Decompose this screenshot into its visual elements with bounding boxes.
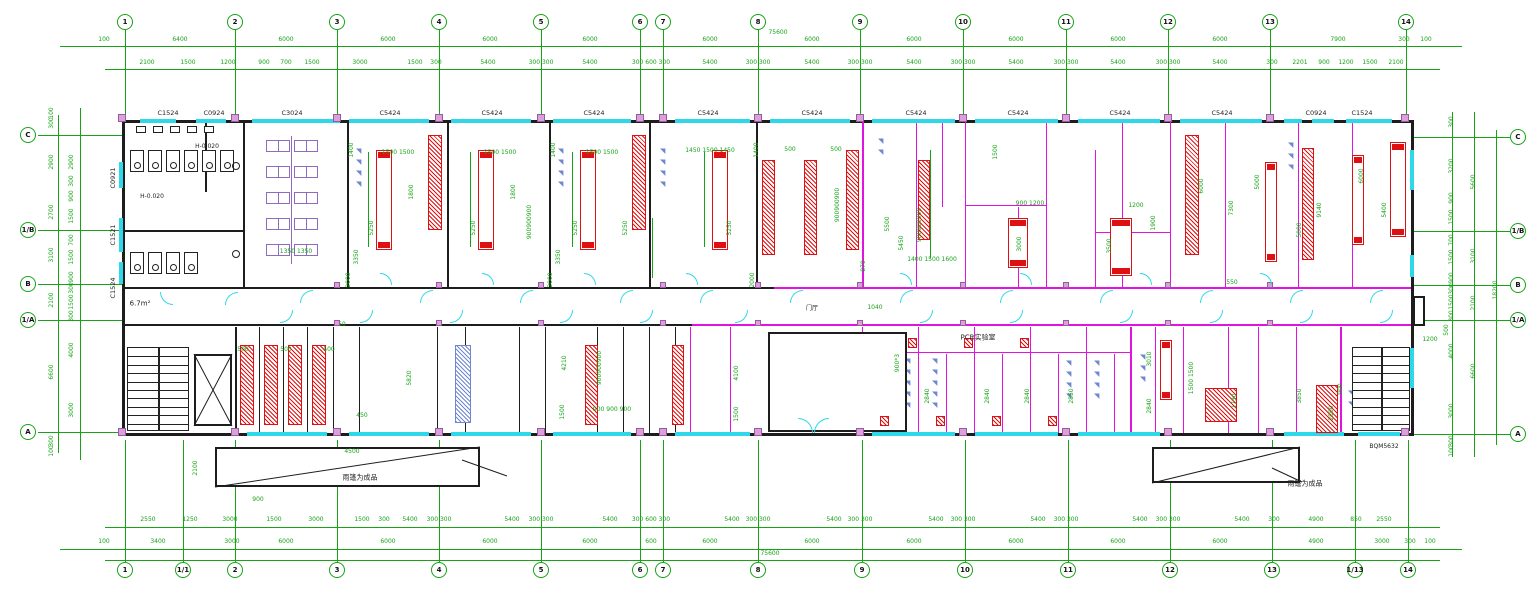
column bbox=[659, 114, 667, 122]
dim-label: 1500 bbox=[1449, 209, 1455, 224]
window bbox=[119, 262, 123, 284]
window bbox=[553, 119, 631, 123]
door-arc bbox=[1260, 273, 1272, 285]
grid-bubble: 9 bbox=[854, 562, 870, 578]
toilet-stall bbox=[130, 252, 144, 274]
chevron-icon: ◥ bbox=[1094, 358, 1104, 369]
dim-label: 2700 bbox=[49, 204, 55, 219]
grid-bubble: 2 bbox=[227, 562, 243, 578]
door-arc bbox=[1200, 290, 1213, 303]
dim-label: 900*3 bbox=[895, 354, 901, 372]
grid-axis-line bbox=[541, 440, 542, 562]
stair-rail bbox=[1381, 348, 1383, 430]
dim-label: 3010 bbox=[1147, 351, 1153, 366]
dim-label: 1250 bbox=[182, 517, 197, 523]
door-arc bbox=[300, 290, 313, 303]
wall bbox=[1095, 232, 1171, 233]
grid-axis-line bbox=[1355, 440, 1356, 562]
grid-axis-line bbox=[663, 440, 664, 562]
dim-label: 1500 bbox=[266, 517, 281, 523]
wall bbox=[307, 327, 308, 433]
bench-cap bbox=[582, 242, 594, 248]
equipment-red bbox=[992, 416, 1001, 426]
dim-label: 2100 bbox=[1388, 60, 1403, 66]
grid-bubble: 1/A bbox=[20, 312, 36, 328]
grid-bubble: 8 bbox=[750, 14, 766, 30]
chevron-symbols: ◥◥◥◥◥ bbox=[932, 356, 942, 411]
dim-label: 5400 bbox=[402, 517, 417, 523]
dim-label: 850 bbox=[1350, 517, 1361, 523]
dim-label: 300 300 bbox=[746, 60, 771, 66]
dim-line bbox=[105, 560, 1440, 561]
dim-label: 6000 bbox=[482, 539, 497, 545]
window bbox=[1410, 150, 1414, 190]
dim-label: 2900 bbox=[69, 154, 75, 169]
chevron-icon: ◥ bbox=[356, 146, 366, 157]
equipment-red bbox=[846, 150, 859, 250]
grid-axis-line bbox=[1068, 440, 1069, 562]
grid-axis-line bbox=[1270, 30, 1271, 120]
grid-bubble: 4 bbox=[431, 14, 447, 30]
bench-cap bbox=[714, 242, 726, 248]
grid-axis-line bbox=[965, 440, 966, 562]
door-arc bbox=[1010, 310, 1023, 323]
grid-bubble: 3 bbox=[329, 14, 345, 30]
stair-rail bbox=[158, 348, 160, 430]
dim-label: 300 300 bbox=[848, 60, 873, 66]
equipment-red bbox=[632, 135, 646, 230]
window bbox=[196, 119, 226, 123]
wall bbox=[243, 122, 245, 287]
dim-label: 6000 bbox=[702, 539, 717, 545]
chevron-icon: ◥ bbox=[558, 179, 568, 190]
wall bbox=[918, 327, 919, 433]
column bbox=[660, 282, 666, 288]
diagonal-line bbox=[462, 458, 507, 478]
grid-axis-line bbox=[862, 440, 863, 562]
dim-label: 100 bbox=[49, 445, 55, 456]
equipment-red bbox=[908, 338, 917, 348]
dim-label: 300 300 bbox=[427, 517, 452, 523]
dim-label: 2840 bbox=[985, 388, 991, 403]
bench-cap bbox=[1162, 392, 1170, 398]
dim-label: 3100 bbox=[1471, 248, 1477, 263]
dim-label: 2100 bbox=[49, 292, 55, 307]
dim-label: 2840 bbox=[1025, 388, 1031, 403]
dim-label: 6000 bbox=[1199, 178, 1205, 193]
dim-label: 300 300 bbox=[529, 517, 554, 523]
dim-label: 300 bbox=[1449, 310, 1455, 321]
dim-label: 6000 bbox=[380, 539, 395, 545]
window bbox=[1312, 119, 1334, 123]
chevron-icon: ◥ bbox=[1094, 380, 1104, 391]
dim-label: 2850 bbox=[1069, 388, 1075, 403]
dim-line bbox=[704, 152, 705, 247]
door-arc bbox=[735, 310, 748, 323]
door-arc bbox=[1210, 310, 1223, 323]
wall bbox=[283, 327, 284, 433]
toilet-fixture bbox=[153, 126, 163, 133]
dim-label: 900 bbox=[258, 60, 269, 66]
bench-cap bbox=[1162, 342, 1170, 348]
wall bbox=[235, 327, 237, 433]
dim-label: 1500 bbox=[1362, 60, 1377, 66]
wall bbox=[545, 327, 546, 433]
door-arc bbox=[1120, 310, 1133, 323]
chevron-icon: ◥ bbox=[558, 157, 568, 168]
dim-label: 900 bbox=[1318, 60, 1329, 66]
dim-label: 900 bbox=[1449, 192, 1455, 203]
dim-label: 4210 bbox=[562, 355, 568, 370]
column bbox=[435, 428, 443, 436]
dim-label: 5400 bbox=[1008, 60, 1023, 66]
dim-label: 5400 bbox=[804, 60, 819, 66]
column bbox=[959, 428, 967, 436]
dim-label: 500 bbox=[280, 347, 291, 353]
wall bbox=[649, 327, 650, 433]
dim-label: 3000 bbox=[69, 402, 75, 417]
dim-line bbox=[60, 46, 1462, 47]
toilet-stall bbox=[202, 150, 216, 172]
dim-label: 300 bbox=[1266, 60, 1277, 66]
dim-label: 6000 bbox=[804, 37, 819, 43]
bench-cap bbox=[1354, 237, 1362, 243]
dim-label: 5400 bbox=[724, 517, 739, 523]
door-arc bbox=[900, 273, 912, 285]
annotation-label: 6.7m² bbox=[130, 301, 151, 308]
dim-label: 300 bbox=[69, 282, 75, 293]
dim-label: 300 300 bbox=[848, 517, 873, 523]
grid-bubble: C bbox=[1510, 129, 1526, 145]
grid-axis-line bbox=[640, 440, 641, 562]
dim-label: 100 bbox=[98, 539, 109, 545]
dim-label: 5000 bbox=[1297, 222, 1303, 237]
dim-label: 900 900 900 bbox=[593, 407, 631, 413]
office-desk bbox=[266, 192, 290, 204]
toilet-fixture bbox=[136, 126, 146, 133]
equipment-red bbox=[672, 345, 684, 425]
wall bbox=[1296, 327, 1297, 433]
dim-label: 100 bbox=[1424, 539, 1435, 545]
grid-bubble: 6 bbox=[632, 14, 648, 30]
column bbox=[537, 114, 545, 122]
toilet-fixture bbox=[187, 126, 197, 133]
annotation-label: BQM5632 bbox=[1369, 444, 1398, 450]
window bbox=[1180, 119, 1262, 123]
grid-bubble: 9 bbox=[852, 14, 868, 30]
equipment-rack bbox=[455, 345, 471, 423]
lab-bench bbox=[478, 150, 494, 250]
door-arc bbox=[900, 290, 913, 303]
grid-bubble: 5 bbox=[533, 562, 549, 578]
dim-label: 1500 bbox=[734, 406, 740, 421]
column bbox=[231, 114, 239, 122]
column bbox=[754, 114, 762, 122]
window bbox=[140, 119, 176, 123]
window-tag: C5424 bbox=[481, 110, 502, 117]
dim-label: 75600 bbox=[768, 30, 787, 36]
grid-axis-line bbox=[758, 30, 759, 120]
window-tag: C3024 bbox=[281, 110, 302, 117]
staircase bbox=[127, 347, 189, 431]
grid-axis-line bbox=[541, 30, 542, 120]
dim-label: 3000 bbox=[1374, 539, 1389, 545]
dim-label: 5400 bbox=[826, 517, 841, 523]
door-arc bbox=[280, 310, 293, 323]
grid-axis-line bbox=[125, 440, 126, 562]
column bbox=[857, 320, 863, 326]
dim-label: 5400 bbox=[1132, 517, 1147, 523]
dim-label: 300 bbox=[69, 175, 75, 186]
annotation-label: H-0.020 bbox=[195, 144, 219, 150]
column bbox=[856, 114, 864, 122]
dim-label: 870 bbox=[861, 260, 867, 271]
wall bbox=[124, 230, 244, 232]
grid-bubble: 1/B bbox=[20, 222, 36, 238]
window-tag: C1524 bbox=[1351, 110, 1372, 117]
grid-axis-line bbox=[1066, 30, 1067, 120]
chevron-symbols: ◥◥◥◥ bbox=[1094, 358, 1104, 402]
lab-bench bbox=[1265, 162, 1277, 262]
window bbox=[1078, 119, 1160, 123]
chevron-icon: ◥ bbox=[660, 157, 670, 168]
equipment-red bbox=[880, 416, 889, 426]
wall bbox=[692, 324, 1411, 326]
grid-bubble: A bbox=[1510, 426, 1526, 442]
dim-label: 500 bbox=[830, 147, 841, 153]
toilet-stall bbox=[166, 150, 180, 172]
dim-label: 5400 bbox=[1382, 202, 1388, 217]
dim-label: 3000 bbox=[352, 60, 367, 66]
grid-axis-line bbox=[963, 30, 964, 120]
grid-axis-line bbox=[758, 440, 759, 562]
dim-label: 2100 bbox=[193, 460, 199, 475]
dim-label: 1200 bbox=[220, 60, 235, 66]
bench-cap bbox=[378, 242, 390, 248]
dim-label: 550 bbox=[1226, 280, 1237, 286]
grid-bubble: 2 bbox=[227, 14, 243, 30]
dim-label: 2000 bbox=[548, 272, 554, 287]
column bbox=[755, 282, 761, 288]
grid-axis-line bbox=[439, 30, 440, 120]
door-arc bbox=[420, 290, 433, 303]
wall bbox=[519, 327, 520, 433]
door-arc bbox=[1290, 290, 1303, 303]
floor-plan-canvas: 123456789101112131411/123456789101112131… bbox=[0, 0, 1540, 590]
wall bbox=[259, 327, 260, 433]
column bbox=[1063, 320, 1069, 326]
office-desk bbox=[266, 218, 290, 230]
dim-label: 2550 bbox=[1376, 517, 1391, 523]
wall bbox=[1114, 354, 1115, 433]
column bbox=[960, 320, 966, 326]
grid-bubble: 7 bbox=[655, 562, 671, 578]
dim-label: 1500 bbox=[69, 294, 75, 309]
window-tag: C1524 bbox=[157, 110, 178, 117]
window bbox=[872, 119, 955, 123]
chevron-icon: ◥ bbox=[932, 400, 942, 411]
chevron-symbols: ◥◥ bbox=[878, 136, 888, 158]
wall bbox=[122, 324, 692, 326]
chevron-icon: ◥ bbox=[660, 179, 670, 190]
column bbox=[659, 428, 667, 436]
dim-label: 300 300 bbox=[529, 60, 554, 66]
column bbox=[538, 282, 544, 288]
dim-label: 2840 bbox=[925, 388, 931, 403]
grid-bubble: 13 bbox=[1262, 14, 1278, 30]
wall bbox=[1183, 327, 1184, 433]
door-arc bbox=[620, 290, 633, 303]
door-arc bbox=[584, 273, 596, 285]
dim-label: 2840 bbox=[1147, 398, 1153, 413]
wall bbox=[1170, 122, 1171, 287]
dim-label: 3400 bbox=[150, 539, 165, 545]
column bbox=[959, 114, 967, 122]
column bbox=[334, 320, 340, 326]
dim-label: 1200 bbox=[1422, 337, 1437, 343]
bench-cap bbox=[480, 242, 492, 248]
wall bbox=[690, 327, 691, 433]
dim-label: 6400 bbox=[172, 37, 187, 43]
dim-label: 6000 bbox=[1008, 37, 1023, 43]
column bbox=[1266, 428, 1274, 436]
dim-label: 2500 bbox=[1329, 405, 1335, 420]
chevron-icon: ◥ bbox=[356, 179, 366, 190]
column bbox=[636, 428, 644, 436]
dim-label: 6000 bbox=[906, 37, 921, 43]
door-arc bbox=[1100, 290, 1113, 303]
column bbox=[435, 114, 443, 122]
door-arc bbox=[1380, 310, 1393, 323]
dim-label: 3000 bbox=[224, 539, 239, 545]
grid-bubble: 1/A bbox=[1510, 312, 1526, 328]
toilet-fixture bbox=[204, 126, 214, 133]
window-tag: C5424 bbox=[697, 110, 718, 117]
window bbox=[349, 432, 429, 436]
dim-label: 450 bbox=[356, 413, 367, 419]
wall bbox=[1258, 327, 1259, 433]
dim-label: 300 bbox=[49, 117, 55, 128]
window bbox=[451, 432, 531, 436]
dim-label: 900 bbox=[252, 497, 263, 503]
annotation-label: 门厅 bbox=[806, 306, 818, 312]
dim-label: 5820 bbox=[407, 370, 413, 385]
dim-label: 500 bbox=[784, 147, 795, 153]
dim-label: 6000 bbox=[582, 37, 597, 43]
chevron-symbols: ◥◥◥◥ bbox=[660, 146, 670, 190]
window bbox=[553, 432, 631, 436]
bench-cap bbox=[1392, 144, 1404, 150]
wall bbox=[1155, 327, 1156, 433]
door-arc bbox=[482, 273, 494, 285]
dim-label: 300 300 bbox=[951, 60, 976, 66]
diagonal-line bbox=[215, 447, 480, 487]
wall bbox=[333, 327, 334, 433]
dim-label: 1900 bbox=[1151, 215, 1157, 230]
equipment-red bbox=[762, 160, 775, 255]
column bbox=[636, 114, 644, 122]
door-arc bbox=[1000, 290, 1013, 303]
chevron-symbols: ◥◥◥◥ bbox=[356, 146, 366, 190]
wall bbox=[623, 327, 624, 433]
dim-label: 700 bbox=[69, 234, 75, 245]
wall bbox=[1340, 327, 1342, 433]
chevron-symbols: ◥◥◥ bbox=[1288, 140, 1298, 173]
dim-label: 1500 bbox=[407, 60, 422, 66]
bench-cap bbox=[1267, 254, 1275, 260]
window-tag: C1521 bbox=[110, 224, 117, 245]
dim-label: 5400 bbox=[504, 517, 519, 523]
wall bbox=[946, 354, 947, 433]
dim-label: 5500 bbox=[885, 216, 891, 231]
dim-label: 900900900 bbox=[917, 208, 923, 242]
window bbox=[349, 119, 429, 123]
window-tag: C1524 bbox=[110, 277, 117, 298]
grid-bubble: 1/1 bbox=[175, 562, 191, 578]
grid-bubble: 1/B bbox=[1510, 223, 1526, 239]
office-desk bbox=[266, 140, 290, 152]
grid-bubble: 14 bbox=[1400, 562, 1416, 578]
dim-label: 900 1200 bbox=[1016, 201, 1045, 207]
equipment-red bbox=[804, 160, 817, 255]
window bbox=[252, 119, 340, 123]
wall bbox=[1030, 327, 1031, 433]
window-tag: C5424 bbox=[1007, 110, 1028, 117]
window bbox=[1346, 119, 1392, 123]
dim-label: 1500 bbox=[180, 60, 195, 66]
dim-label: 2900 bbox=[49, 154, 55, 169]
dim-label: 6600 bbox=[1471, 363, 1477, 378]
dim-line bbox=[80, 108, 81, 460]
column bbox=[333, 114, 341, 122]
column bbox=[537, 428, 545, 436]
dim-label: 5250 bbox=[623, 220, 629, 235]
dim-label: 6000 bbox=[582, 539, 597, 545]
grid-bubble: 11 bbox=[1058, 14, 1074, 30]
window bbox=[119, 218, 123, 252]
toilet-stall bbox=[148, 252, 162, 274]
dim-label: 500 bbox=[323, 347, 334, 353]
dim-label: 1500 bbox=[1449, 249, 1455, 264]
dim-label: 700 bbox=[280, 60, 291, 66]
column bbox=[436, 320, 442, 326]
equipment-red bbox=[312, 345, 326, 425]
door-arc bbox=[450, 310, 463, 323]
bench-cap bbox=[1010, 220, 1026, 226]
dim-label: 700 bbox=[1449, 234, 1455, 245]
dim-label: 6000 bbox=[482, 37, 497, 43]
dim-label: 5400 bbox=[1110, 60, 1125, 66]
door-arc bbox=[790, 290, 803, 303]
equipment-red bbox=[288, 345, 302, 425]
dim-label: 4900 bbox=[1308, 517, 1323, 523]
dim-label: 900900900 bbox=[597, 351, 603, 385]
lab-bench bbox=[1110, 218, 1132, 276]
dim-label: 6000 bbox=[1212, 37, 1227, 43]
wall bbox=[774, 287, 1411, 289]
dim-label: 300 bbox=[378, 517, 389, 523]
dim-label: 2550 bbox=[140, 517, 155, 523]
dim-label: 300 bbox=[69, 310, 75, 321]
dim-label: 5250 bbox=[727, 220, 733, 235]
dim-label: 4000 bbox=[1449, 343, 1455, 358]
window-tag: C0921 bbox=[110, 167, 117, 188]
grid-axis-line bbox=[1406, 30, 1407, 120]
wall bbox=[1086, 327, 1087, 433]
wash-basin bbox=[232, 162, 240, 170]
dim-label: 3000 bbox=[308, 517, 323, 523]
lab-bench bbox=[580, 150, 596, 250]
